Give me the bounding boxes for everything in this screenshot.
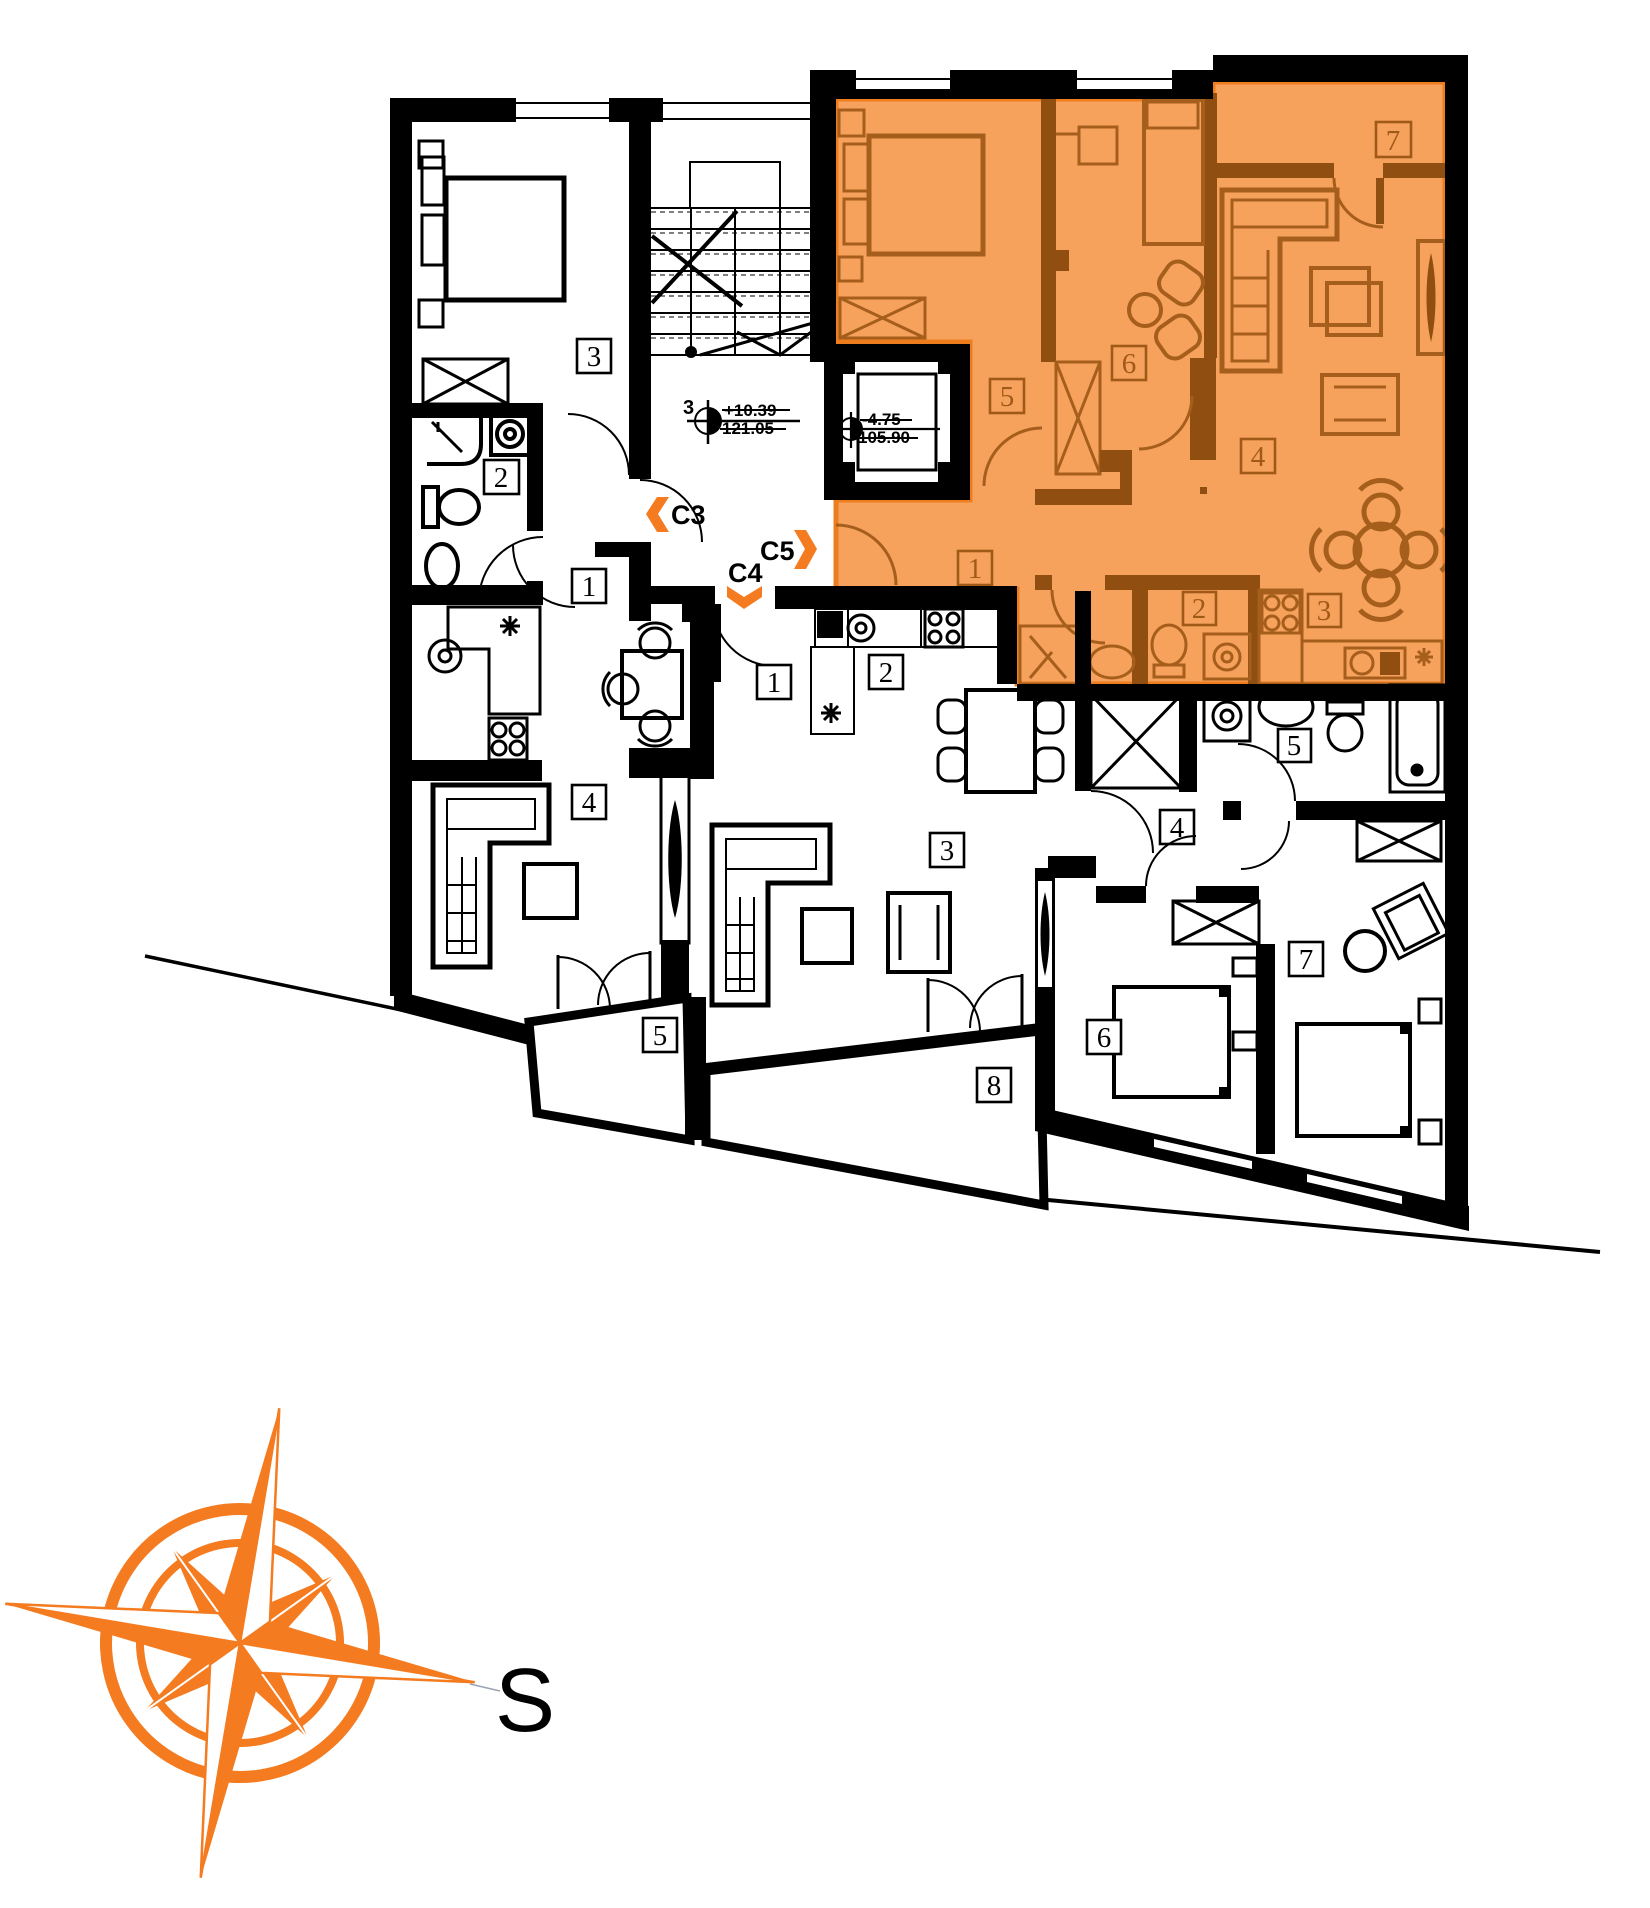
svg-text:3: 3 [683,397,694,419]
svg-text:8: 8 [987,1070,1002,1102]
svg-text:S: S [495,1651,555,1751]
svg-text:4: 4 [582,787,597,819]
svg-text:2: 2 [494,462,509,494]
svg-text:6: 6 [1097,1022,1112,1054]
svg-text:2: 2 [1192,593,1207,625]
svg-text:C5: C5 [760,536,795,566]
svg-text:C3: C3 [671,500,706,530]
svg-text:1: 1 [582,571,597,603]
svg-text:7: 7 [1299,944,1314,976]
svg-text:5: 5 [1000,381,1015,413]
svg-text:7: 7 [1386,125,1401,157]
svg-text:4: 4 [1251,441,1266,473]
svg-text:1: 1 [767,667,782,699]
svg-text:2: 2 [879,657,894,689]
svg-text:C4: C4 [728,558,763,588]
svg-text:3: 3 [1317,595,1332,627]
svg-text:5: 5 [1287,730,1302,762]
svg-text:1: 1 [968,553,983,585]
svg-text:3: 3 [587,341,602,373]
svg-text:3: 3 [940,835,955,867]
svg-text:5: 5 [653,1020,668,1052]
svg-text:6: 6 [1122,348,1137,380]
